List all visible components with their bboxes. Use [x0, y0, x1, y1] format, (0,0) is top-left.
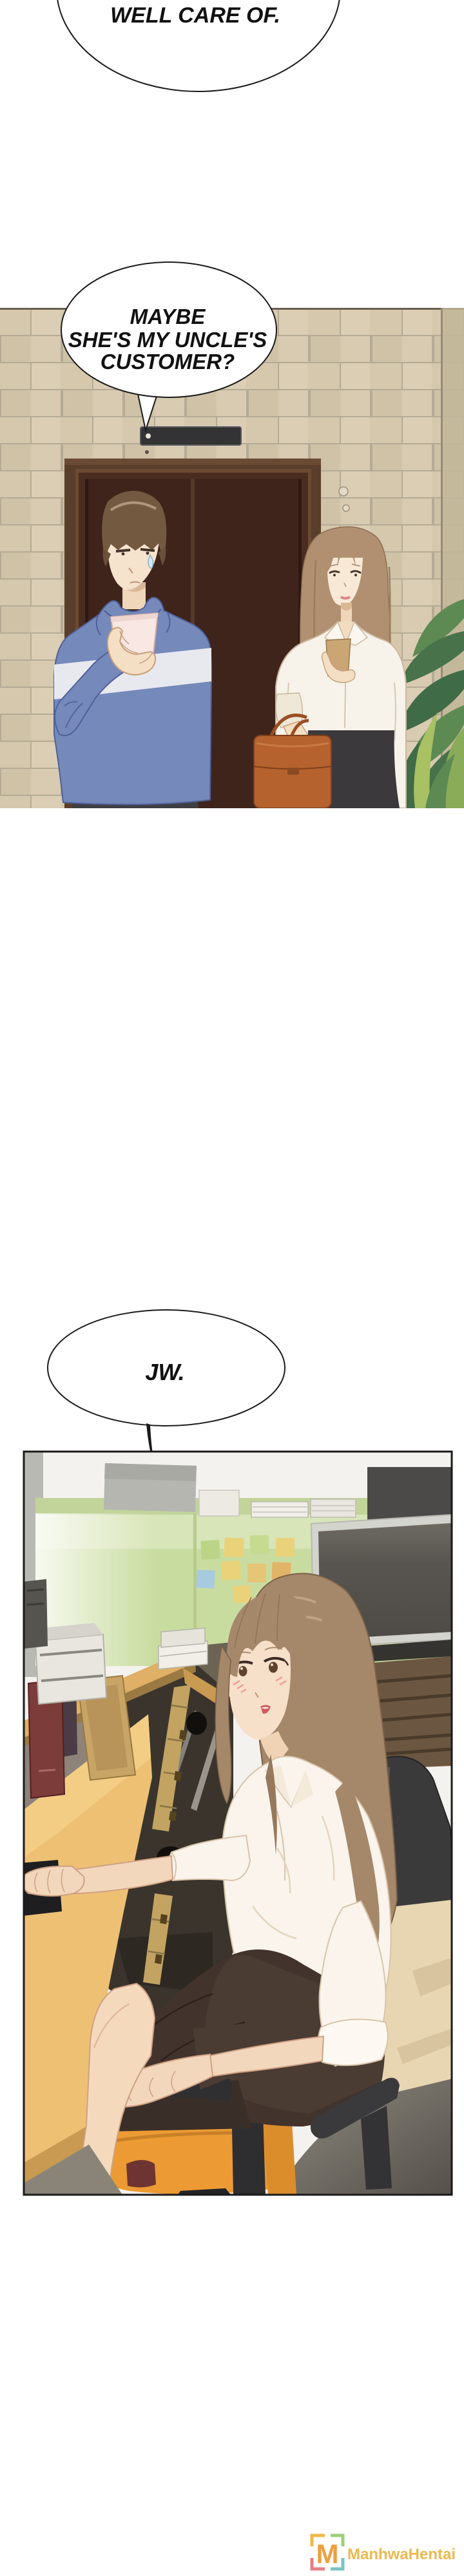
svg-text:MAYBE: MAYBE	[130, 305, 206, 328]
svg-text:ManhwaHentai: ManhwaHentai	[347, 2546, 456, 2563]
svg-text:JW.: JW.	[145, 1359, 184, 1385]
svg-text:CUSTOMER?: CUSTOMER?	[101, 350, 235, 374]
svg-text:WELL CARE OF.: WELL CARE OF.	[110, 3, 280, 28]
svg-text:SHE'S MY UNCLE'S: SHE'S MY UNCLE'S	[68, 328, 267, 352]
svg-text:M: M	[316, 2539, 339, 2569]
